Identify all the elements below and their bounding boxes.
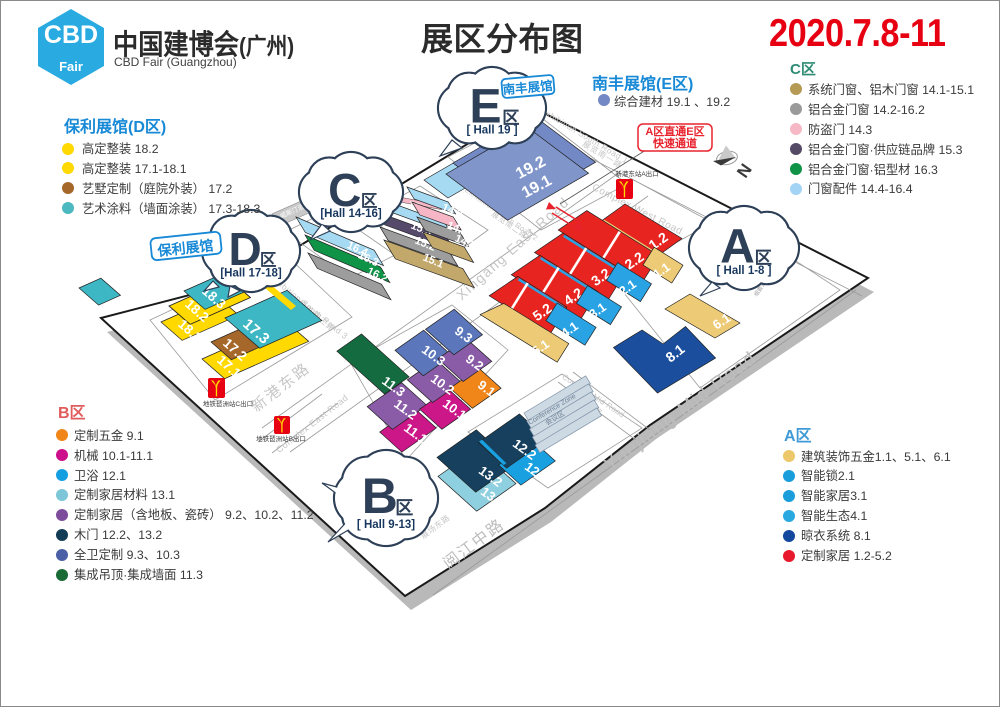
- svg-text:Fair: Fair: [59, 59, 83, 74]
- svg-text:CBD: CBD: [44, 21, 98, 49]
